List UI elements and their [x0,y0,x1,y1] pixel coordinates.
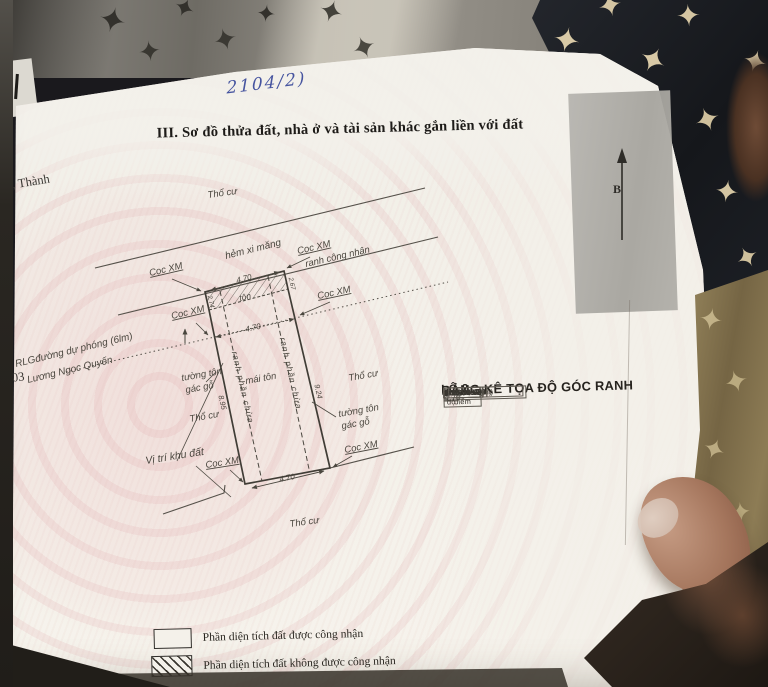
label-coc-xm-right: Cọc XM [316,284,351,302]
label-coc-xm-bl: Cọc XM [205,455,240,471]
label-coc-xm-br: Cọc XM [343,439,378,456]
cell-y: 603202.38 [443,387,483,399]
legend-recognized-swatch [153,628,191,649]
north-arrow: B [613,148,627,240]
dim-bottom: 4.70 [279,472,297,484]
dim-mid: 4.70 [244,322,262,334]
label-tho-cu-bottom: Thổ cư [289,515,321,530]
legend-not-recognized-label: Phần diện tích đất không được công nhận [203,654,396,672]
label-ranh-phan-chua-right: ranh phần chừa [278,336,304,410]
survey-diagram: Thổ cư hẻm xi măng Cọc XM Cọc XM ranh cô… [0,0,768,687]
photo-stage: ✦ ✦ ✦ ✦ ✦ ✦ ✦ ✦ ✦ ✦ ✦ ✦ ✦ ✦ ✦ ✦ ✦ ✦ ✦ 21… [0,0,768,687]
label-vi-tri-khu-dat: Vị trí khu đất [145,446,206,467]
legend-recognized-label: Phần diện tích đất được công nhận [203,627,364,644]
label-tho-cu-top: Thổ cư [207,186,239,201]
label-ton: tôn [238,290,252,302]
label-coc-xm-midleft: Cọc XM [170,304,205,322]
label-tho-cu-left: Thổ cư [189,409,221,425]
label-hem-xi-mang: hẻm xi măng [224,236,283,262]
label-tho-cu-right: Thổ cư [348,368,380,384]
label-mai-ton: mái tôn [245,371,278,387]
label-coc-xm-tl: Cọc XM [148,261,183,279]
north-label: B [613,182,621,196]
label-ranh-phan-chua-left: ranh phần chừa [230,350,256,424]
dark-left-edge [0,0,13,687]
